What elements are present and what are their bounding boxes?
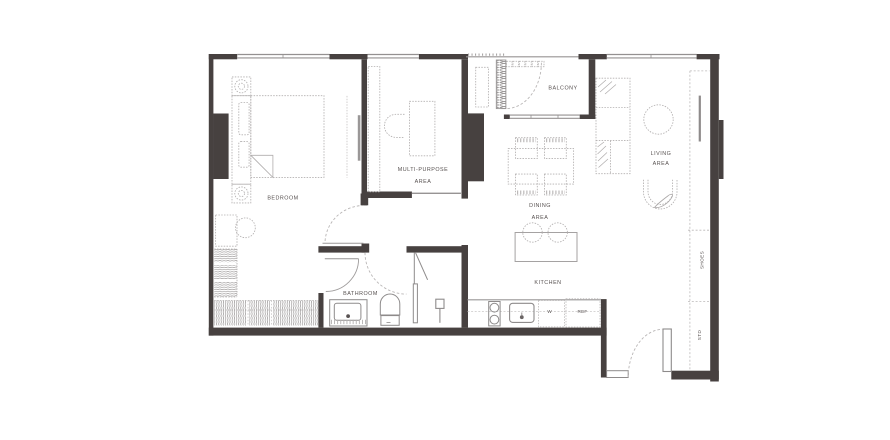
svg-text:DINING: DINING	[529, 203, 551, 209]
svg-text:REF: REF	[577, 309, 587, 314]
svg-text:BEDROOM: BEDROOM	[267, 196, 298, 202]
svg-text:BALCONY: BALCONY	[548, 85, 577, 91]
svg-text:SHOES: SHOES	[700, 251, 705, 269]
svg-text:KITCHEN: KITCHEN	[534, 280, 561, 286]
svg-text:W: W	[547, 309, 552, 314]
svg-text:BATHROOM: BATHROOM	[343, 291, 378, 297]
svg-text:LIVING: LIVING	[651, 151, 672, 157]
svg-text:AREA: AREA	[532, 215, 549, 221]
svg-text:MULTI-PURPOSE: MULTI-PURPOSE	[398, 167, 448, 173]
svg-text:AREA: AREA	[415, 179, 432, 185]
svg-text:STD: STD	[697, 330, 702, 341]
svg-text:AREA: AREA	[653, 161, 670, 167]
